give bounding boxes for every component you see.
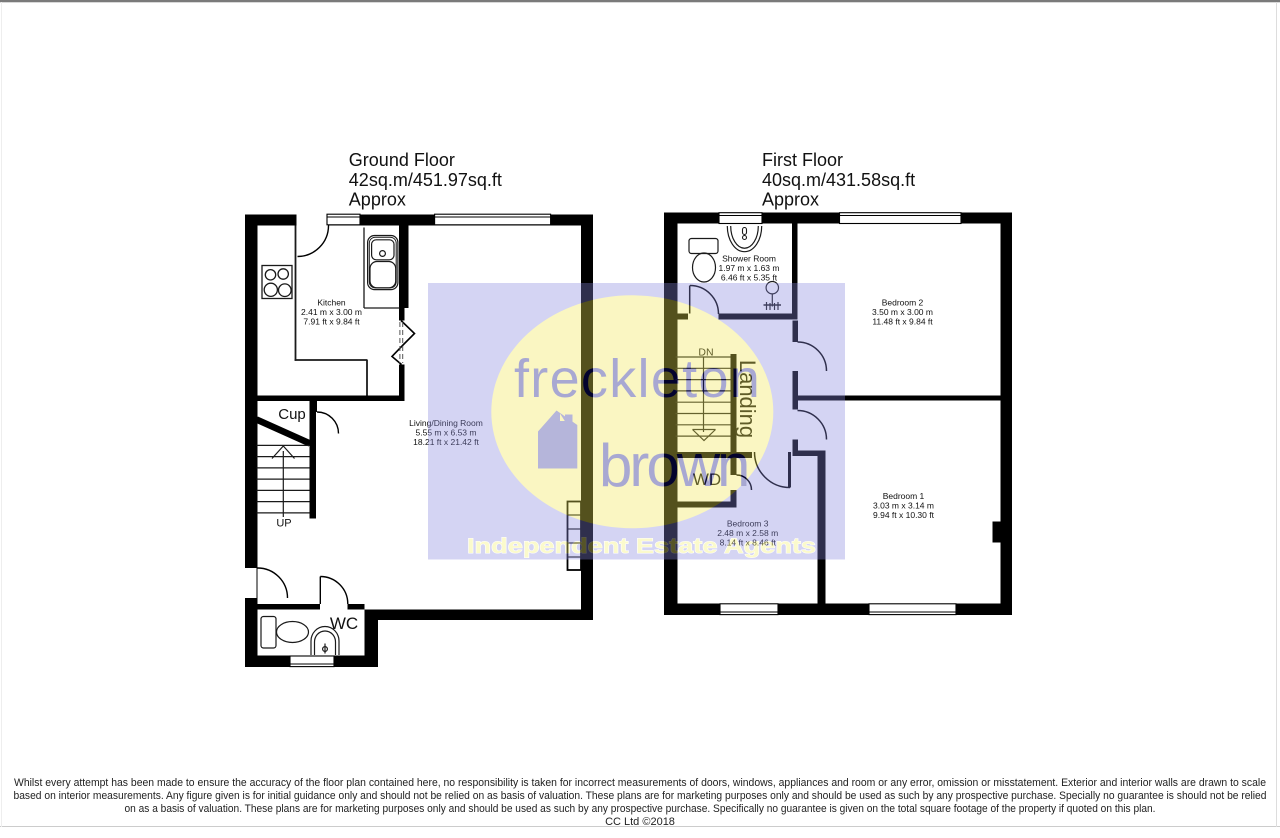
svg-text:based on interior measurements: based on interior measurements. Any figu… xyxy=(14,790,1267,802)
svg-text:42sq.m/451.97sq.ft: 42sq.m/451.97sq.ft xyxy=(349,170,502,190)
svg-text:on as a basis of valuation. Th: on as a basis of valuation. These plans … xyxy=(125,803,1156,815)
svg-text:40sq.m/431.58sq.ft: 40sq.m/431.58sq.ft xyxy=(762,170,915,190)
svg-text:11.48 ft x 9.84 ft: 11.48 ft x 9.84 ft xyxy=(872,317,933,327)
svg-text:CC Ltd ©2018: CC Ltd ©2018 xyxy=(605,816,675,828)
svg-text:9.94 ft x 10.30 ft: 9.94 ft x 10.30 ft xyxy=(873,510,935,520)
svg-text:2.41 m x 3.00 m: 2.41 m x 3.00 m xyxy=(301,307,362,317)
svg-text:7.91 ft x 9.84 ft: 7.91 ft x 9.84 ft xyxy=(303,317,360,327)
svg-text:Independent Estate Agents: Independent Estate Agents xyxy=(467,535,816,558)
svg-text:Whilst every attempt has been: Whilst every attempt has been made to en… xyxy=(14,777,1266,789)
svg-text:Bedroom 2: Bedroom 2 xyxy=(882,298,924,308)
svg-text:Approx: Approx xyxy=(349,190,406,210)
svg-text:Kitchen: Kitchen xyxy=(317,298,346,308)
svg-text:Shower Room: Shower Room xyxy=(722,254,776,264)
svg-text:Approx: Approx xyxy=(762,190,819,210)
svg-text:First Floor: First Floor xyxy=(762,150,843,170)
svg-text:1.97 m x 1.63 m: 1.97 m x 1.63 m xyxy=(719,263,780,273)
svg-text:6.46 ft x 5.35 ft: 6.46 ft x 5.35 ft xyxy=(721,273,778,283)
svg-text:Cup: Cup xyxy=(278,406,306,423)
svg-text:freckleton: freckleton xyxy=(514,349,761,409)
svg-text:Bedroom 1: Bedroom 1 xyxy=(883,491,925,501)
svg-text:3.03 m x 3.14 m: 3.03 m x 3.14 m xyxy=(873,501,934,511)
svg-text:brown: brown xyxy=(599,432,747,499)
svg-text:UP: UP xyxy=(276,518,291,530)
svg-text:WC: WC xyxy=(330,614,358,633)
svg-text:Ground Floor: Ground Floor xyxy=(349,150,455,170)
svg-text:3.50 m x 3.00 m: 3.50 m x 3.00 m xyxy=(872,307,933,317)
